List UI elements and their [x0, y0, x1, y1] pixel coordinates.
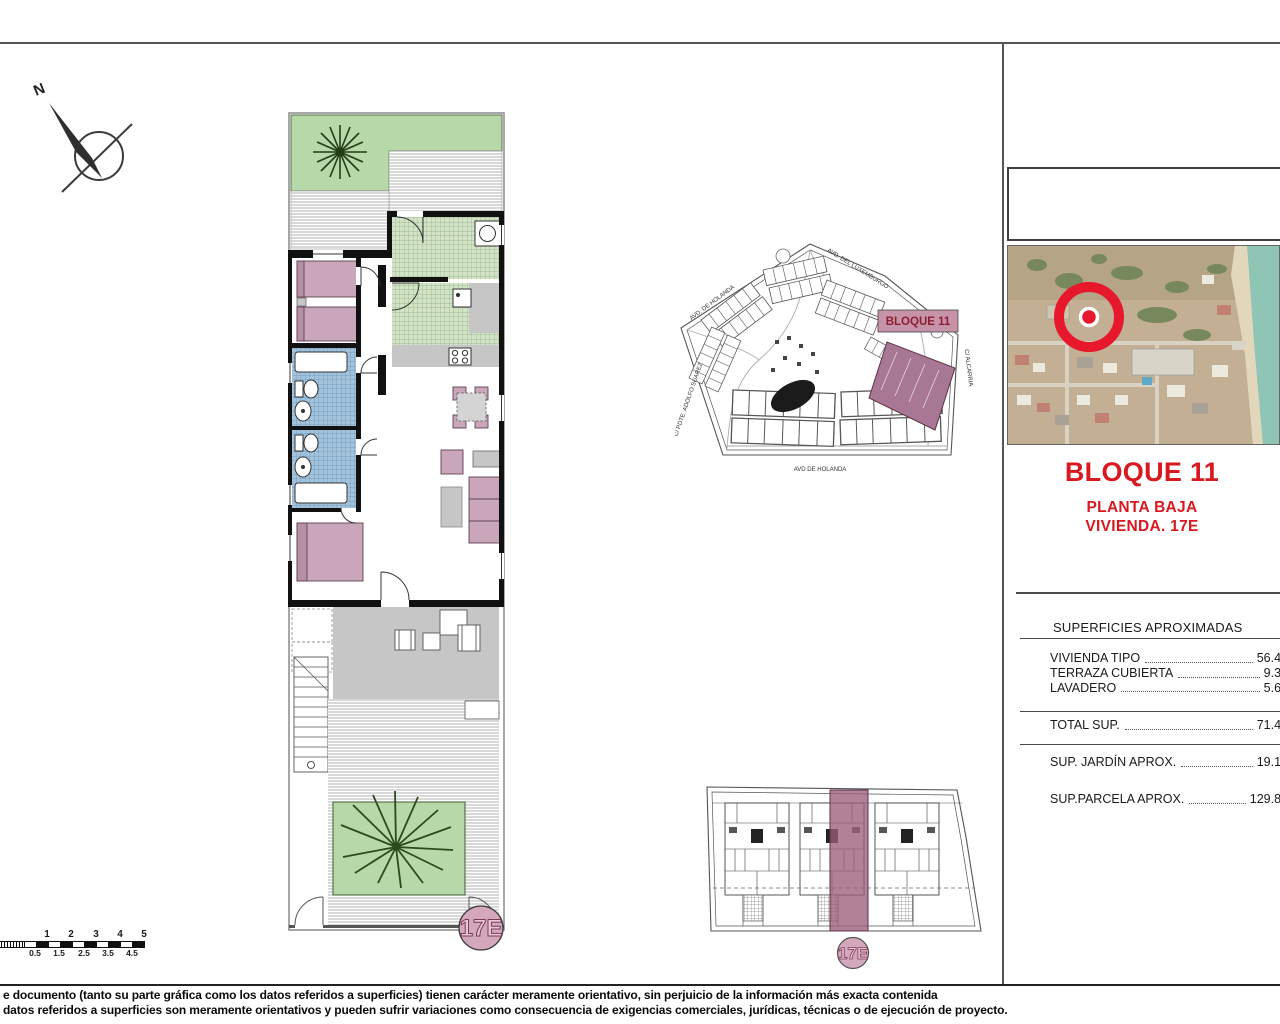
surface-label: LAVADERO: [1050, 681, 1116, 696]
dining-table-icon: [457, 393, 486, 421]
surface-row: SUP.PARCELA APROX. 129.80: [1050, 792, 1280, 807]
footer-disclaimer-line2: datos referidos a superficies son merame…: [3, 1003, 1008, 1017]
surfaces-total-row: TOTAL SUP. 71.43: [1050, 718, 1280, 733]
scale-tick-label: 0.5: [26, 948, 44, 958]
scale-tick-label: 1.5: [50, 948, 68, 958]
scale-tick-label: 3.5: [99, 948, 117, 958]
surfaces-garden-row: SUP. JARDÍN APROX. 19.13: [1050, 755, 1280, 770]
scale-tick-label: 2.5: [75, 948, 93, 958]
surface-label: VIVIENDA TIPO: [1050, 651, 1140, 666]
scale-tick-label: 4: [114, 929, 126, 940]
surface-row: LAVADERO 5.62: [1050, 681, 1280, 696]
plan-sheet: N: [0, 0, 1280, 1024]
stove-icon: [449, 348, 471, 365]
surface-row: VIVIENDA TIPO 56.43: [1050, 651, 1280, 666]
dot-leader: [1125, 729, 1253, 730]
surfaces-header-underline: [1020, 638, 1280, 639]
floor-plan-drawing: 17E: [283, 105, 508, 960]
title-box-empty: [1007, 167, 1280, 241]
kitchen-counter: [469, 283, 500, 333]
scale-bar: 1 2 3 4 5 0.5 1.5 2.5 3.5 4.5: [0, 929, 165, 961]
chair-icon: [458, 625, 480, 651]
frame-bottom-line: [0, 984, 1280, 986]
sofa-icon: [469, 477, 500, 543]
scale-tick-label: 5: [138, 929, 150, 940]
surface-value: 5.62: [1264, 681, 1280, 696]
highlighted-unit-strip: [830, 790, 868, 931]
bench-icon: [465, 701, 499, 719]
front-patio-paving: [291, 191, 389, 249]
toilet-icon: [295, 381, 303, 397]
north-compass-icon: N: [22, 70, 157, 205]
surface-label: TOTAL SUP.: [1050, 718, 1120, 733]
frame-top-line: [0, 42, 1280, 44]
surfaces-rows: VIVIENDA TIPO 56.43 TERRAZA CUBIERTA 9.3…: [1050, 651, 1280, 695]
garden-plant-icon: [313, 125, 367, 179]
dot-leader: [1189, 803, 1245, 804]
street-label: AVD DE HOLANDA: [794, 467, 847, 473]
surfaces-plot-row: SUP.PARCELA APROX. 129.80: [1050, 792, 1280, 807]
kitchen-sink-icon: [453, 289, 471, 307]
dot-leader: [1121, 691, 1259, 692]
tv-cabinet-icon: [441, 487, 462, 527]
street-label: C/ PDTE. ADOLFO SUAREZ: [675, 362, 705, 437]
bathtub-icon: [295, 483, 347, 503]
surfaces-separator: [1020, 744, 1280, 745]
surface-label: SUP. JARDÍN APROX.: [1050, 755, 1176, 770]
chair-icon: [395, 630, 415, 650]
toilet-icon: [295, 435, 303, 451]
bed-icon: [297, 307, 359, 341]
rear-terrace: [333, 607, 499, 699]
compass-n-label: N: [31, 80, 47, 100]
coffee-table-icon: [473, 451, 500, 467]
unit-badge-keyplan: 17E: [838, 938, 869, 969]
surface-value: 56.43: [1257, 651, 1280, 666]
block-label: BLOQUE 11: [878, 310, 958, 332]
dot-leader: [1181, 766, 1253, 767]
scale-tick-label: 2: [65, 929, 77, 940]
chair-icon: [423, 633, 440, 650]
site-plan-drawing: BLOQUE 11 AVD. DE HOLANDA AVD. DEL LUXEM…: [675, 240, 980, 485]
unit-badge-label: 17E: [838, 944, 868, 963]
unit-badge-floorplan: 17E: [459, 906, 503, 950]
surface-value: 71.43: [1257, 718, 1280, 733]
surface-label: SUP.PARCELA APROX.: [1050, 792, 1184, 807]
unit-badge-label: 17E: [460, 915, 503, 942]
surface-value: 129.80: [1250, 792, 1280, 807]
block-label-text: BLOQUE 11: [886, 316, 951, 328]
bathtub-icon: [295, 352, 347, 372]
washing-machine-icon: [475, 221, 500, 246]
armchair-icon: [441, 450, 463, 474]
surface-value: 9.38: [1264, 666, 1280, 681]
title-block: BLOQUE 11: [1004, 457, 1280, 488]
scale-tick-label: 3: [90, 929, 102, 940]
title-floor: PLANTA BAJA: [1004, 499, 1280, 517]
scale-bar-strip: [0, 941, 145, 948]
surface-label: TERRAZA CUBIERTA: [1050, 666, 1173, 681]
surfaces-separator: [1020, 711, 1280, 712]
surfaces-header: SUPERFICIES APROXIMADAS: [1053, 620, 1243, 635]
dot-leader: [1145, 662, 1253, 663]
bed-icon: [297, 261, 359, 297]
kitchen-counter: [392, 345, 500, 367]
scale-tick-label: 4.5: [123, 948, 141, 958]
street-label: C/ ALCARRIA: [963, 349, 974, 387]
scale-tick-label: 1: [41, 929, 53, 940]
surface-row: SUP. JARDÍN APROX. 19.13: [1050, 755, 1280, 770]
aerial-photo: [1007, 245, 1280, 445]
front-patio-paving: [389, 151, 502, 211]
footer-disclaimer-line1: e documento (tanto su parte gráfica como…: [3, 988, 938, 1002]
block-key-plan: 17E: [685, 775, 990, 975]
title-unit: VIVIENDA. 17E: [1004, 518, 1280, 536]
dot-leader: [1178, 677, 1259, 678]
surface-value: 19.13: [1257, 755, 1280, 770]
panel-separator: [1016, 592, 1280, 594]
staircase: [294, 657, 328, 772]
surface-row: TERRAZA CUBIERTA 9.38: [1050, 666, 1280, 681]
surface-row-total: TOTAL SUP. 71.43: [1050, 718, 1280, 733]
